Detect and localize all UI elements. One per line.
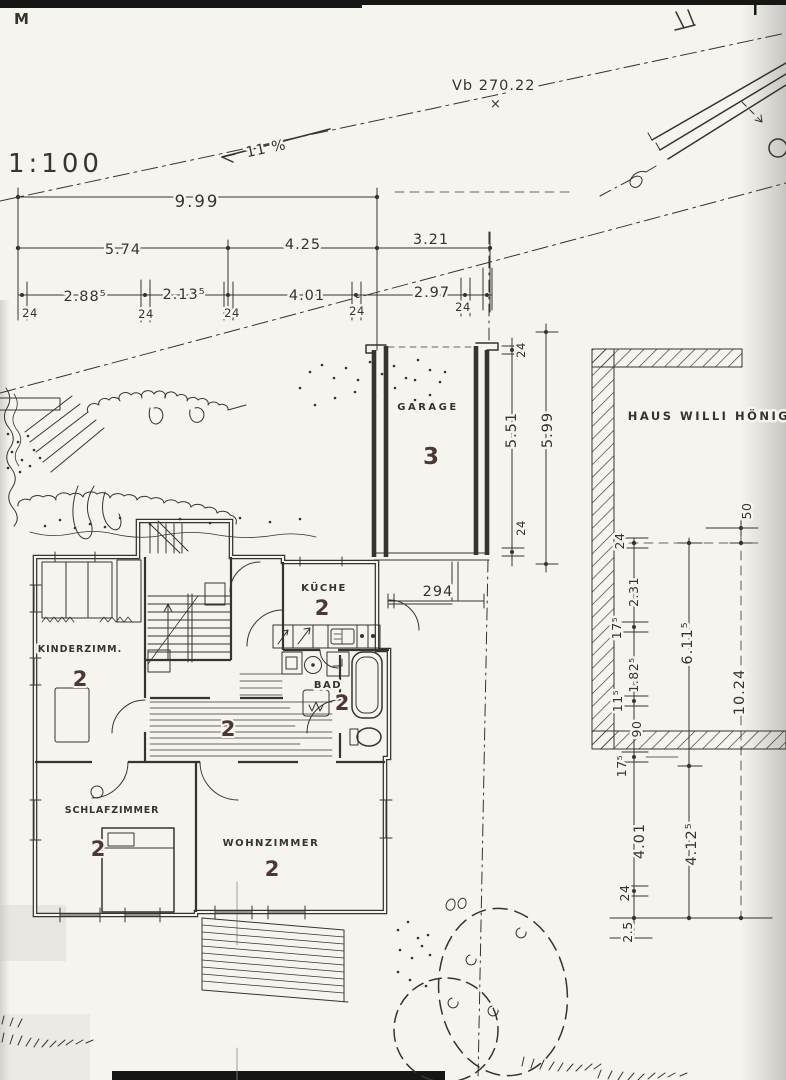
dim-garage-24-bottom: 24 <box>514 520 528 536</box>
survey-point-x: × <box>490 97 501 112</box>
dim-24-2: 24 <box>138 307 154 321</box>
dim-24-3: 24 <box>224 306 240 320</box>
dim-r-1024: 10.24 <box>732 669 748 716</box>
room-label-kueche: KÜCHE <box>301 580 347 594</box>
room-label-kinderzimmer: KINDERZIMM. <box>38 644 122 655</box>
dim-r-1825: 1.82⁵ <box>626 657 641 692</box>
dim-r-6115: 6.11⁵ <box>680 621 696 664</box>
dim-425: 4.25 <box>285 237 321 253</box>
dim-999: 9.99 <box>175 192 220 211</box>
dim-r-90: 90 <box>629 721 644 738</box>
room-number-flur: 2 <box>221 717 236 741</box>
dim-401: 4.01 <box>289 288 325 304</box>
room-number-kinderzimmer: 2 <box>73 667 88 691</box>
room-number-kueche: 2 <box>315 596 330 620</box>
dim-garage-551: 5.51 <box>504 412 520 448</box>
survey-point-label: Vb 270.22 <box>452 78 535 94</box>
room-number-wohnzimmer: 2 <box>265 857 280 881</box>
dim-r-401: 4.01 <box>632 823 648 859</box>
dim-24-4: 24 <box>349 304 365 318</box>
room-number-schlafzimmer: 2 <box>91 837 106 861</box>
dim-r-25: 2.5 <box>620 921 635 942</box>
scale-label: 1:100 <box>8 149 103 179</box>
sheet-mark: M <box>14 10 29 28</box>
dim-r-24a: 24 <box>612 533 627 550</box>
dim-r-175a: 17⁵ <box>609 617 624 639</box>
room-label-schlafzimmer: SCHLAFZIMMER <box>65 805 159 816</box>
dim-24-1: 24 <box>22 306 38 320</box>
dim-r-231: 2.31 <box>626 577 641 607</box>
room-number-bad: 2 <box>335 691 350 715</box>
dim-574: 5.74 <box>105 242 141 258</box>
dim-r-50: 50 <box>739 503 754 520</box>
dim-r-175b: 17⁵ <box>614 755 629 777</box>
dim-garage-24-top: 24 <box>514 342 528 358</box>
house-title: HAUS WILLI HÖNIG <box>628 408 786 423</box>
dim-297: 2.97 <box>414 285 450 301</box>
plan-drawing: M 1:100 11 % Vb 270.22 × 9.99 5.74 4.25 … <box>0 0 786 1080</box>
dim-r-115: 11⁵ <box>610 690 625 712</box>
dim-2135: 2.13⁵ <box>162 287 205 303</box>
room-label-garage: GARAGE <box>397 402 458 413</box>
dim-24-5: 24 <box>455 300 471 314</box>
room-label-wohnzimmer: WOHNZIMMER <box>223 838 320 849</box>
dim-2885: 2.88⁵ <box>63 289 106 305</box>
dim-garage-599: 5.99 <box>540 412 556 448</box>
dim-r-24b: 24 <box>617 885 632 902</box>
room-number-garage: 3 <box>423 444 439 470</box>
floorplan-sheet: M 1:100 11 % Vb 270.22 × 9.99 5.74 4.25 … <box>0 0 786 1080</box>
dim-294: 294 <box>423 584 454 600</box>
dim-321: 3.21 <box>413 232 449 248</box>
room-label-bad: BAD <box>314 680 342 691</box>
dim-r-4125: 4.12⁵ <box>684 822 700 865</box>
